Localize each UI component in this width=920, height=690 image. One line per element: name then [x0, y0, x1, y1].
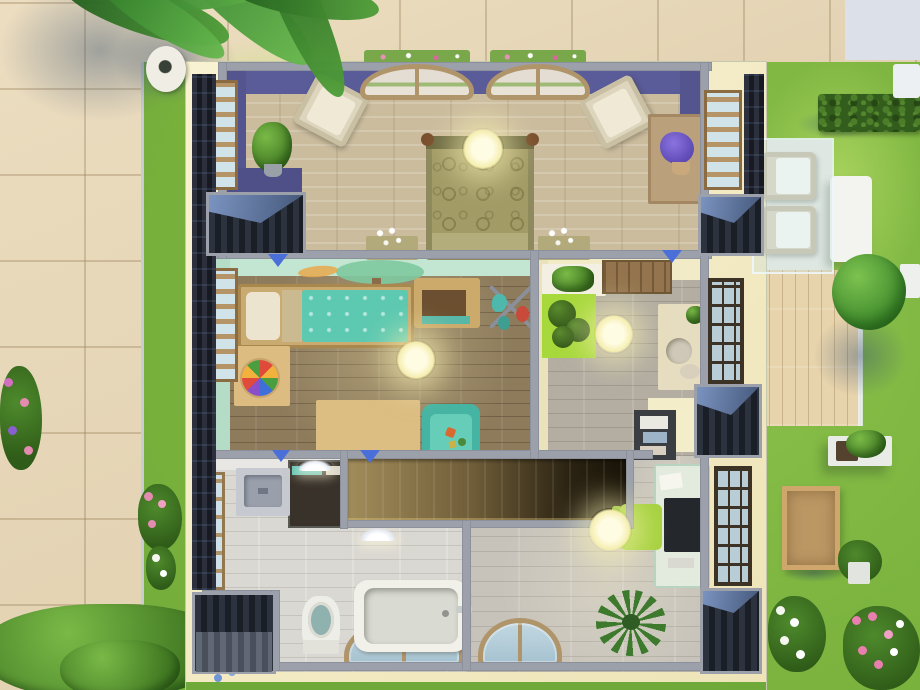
- flower-dot: [144, 492, 153, 501]
- kids-play-table[interactable]: [316, 400, 420, 456]
- game-window: [0, 0, 920, 690]
- ceiling-lamp-hall[interactable]: [588, 508, 632, 552]
- potted-plant-base: [264, 164, 282, 177]
- door-nursery-east[interactable]: [708, 278, 744, 384]
- planter-top-right[interactable]: [893, 64, 920, 98]
- kids-dresser-shelf: [422, 290, 466, 318]
- sink-faucet: [258, 488, 268, 494]
- bed-post-knob: [421, 133, 434, 146]
- wall-sconce[interactable]: [298, 460, 332, 471]
- flower-dot: [148, 520, 156, 528]
- bush-bottom-left-2: [60, 640, 180, 690]
- toilet-lid: [308, 602, 334, 638]
- wall-kids-nursery: [530, 250, 539, 459]
- computer-keyboard: [668, 558, 694, 568]
- book-stack: [643, 432, 667, 443]
- wall-sconce[interactable]: [360, 528, 396, 541]
- fence-line: [141, 62, 144, 690]
- kids-bed-pillow: [246, 292, 280, 340]
- wall-stairs-west: [340, 450, 348, 529]
- ceiling-lamp-master[interactable]: [462, 128, 504, 170]
- flower-dot: [214, 674, 222, 682]
- kids-bed-lattice: [282, 290, 302, 342]
- palm-tree-pot[interactable]: [146, 46, 186, 92]
- flower-dot: [858, 646, 867, 655]
- flower-dot: [884, 630, 893, 639]
- sunroom-glass-wall: [752, 138, 834, 274]
- desk-papers: [659, 473, 683, 491]
- ceiling-lamp-kids[interactable]: [396, 340, 436, 380]
- vanity-bowl: [680, 364, 700, 379]
- flower-dot: [776, 606, 785, 615]
- book-stack: [640, 416, 668, 429]
- kids-dresser-edge: [422, 316, 470, 324]
- flower-dot: [8, 426, 17, 435]
- flower-dot: [24, 446, 33, 455]
- flower-dot: [780, 636, 789, 645]
- white-flower-bush-west[interactable]: [146, 546, 176, 590]
- flower-dot: [790, 618, 799, 627]
- moss-decor[interactable]: [552, 266, 594, 292]
- flower-dot: [160, 570, 167, 577]
- staircase[interactable]: [348, 459, 626, 521]
- mobile-cone: [516, 306, 529, 322]
- neighbor-paving: [845, 0, 920, 60]
- flower-dot: [158, 500, 166, 508]
- potted-palm-core: [622, 614, 640, 630]
- flower-dot: [20, 398, 29, 407]
- flower-dot: [874, 660, 883, 669]
- purple-flower-pot-base: [672, 162, 690, 175]
- vase-white-flowers[interactable]: [546, 226, 576, 250]
- door-nursery-north[interactable]: [602, 260, 672, 294]
- tall-grass-pot: [848, 562, 870, 584]
- bed-post-knob: [526, 133, 539, 146]
- wall-bath-hall: [462, 520, 471, 671]
- ceiling-lamp-nursery[interactable]: [594, 314, 634, 354]
- purple-flower-pot[interactable]: [660, 132, 694, 164]
- flower-dot: [868, 612, 877, 621]
- vanity-mirror[interactable]: [666, 338, 692, 364]
- game-viewport[interactable]: [0, 0, 920, 690]
- flower-dot: [852, 616, 861, 625]
- bed-blanket-fold: [432, 233, 528, 251]
- tree-canopy[interactable]: [832, 254, 906, 330]
- bathtub-drain: [442, 610, 449, 617]
- floor-toy[interactable]: [458, 438, 466, 446]
- topiary-ball[interactable]: [552, 326, 574, 348]
- flower-dot: [796, 650, 805, 659]
- flower-dot: [890, 648, 898, 656]
- kids-bed-spread: [302, 290, 408, 342]
- mobile-cone: [498, 316, 510, 330]
- hedge[interactable]: [818, 94, 920, 132]
- flower-dot: [896, 620, 904, 628]
- flower-dot: [152, 554, 160, 562]
- door-hall-east[interactable]: [714, 466, 752, 586]
- door-master-east[interactable]: [704, 90, 742, 190]
- computer-monitor[interactable]: [664, 498, 702, 552]
- vase-white-flowers[interactable]: [374, 226, 404, 250]
- toilet-tank: [303, 640, 339, 654]
- roof-strip-east: [744, 74, 764, 204]
- sandbox[interactable]: [782, 486, 840, 570]
- outdoor-table-white[interactable]: [830, 176, 872, 262]
- grass-bottom-strip: [186, 682, 766, 690]
- roof-strip-west: [192, 74, 216, 590]
- wall-south: [268, 662, 708, 671]
- pinwheel-toy[interactable]: [242, 360, 278, 396]
- flower-dot: [4, 378, 13, 387]
- roof-sw-lower-slope: [196, 632, 272, 672]
